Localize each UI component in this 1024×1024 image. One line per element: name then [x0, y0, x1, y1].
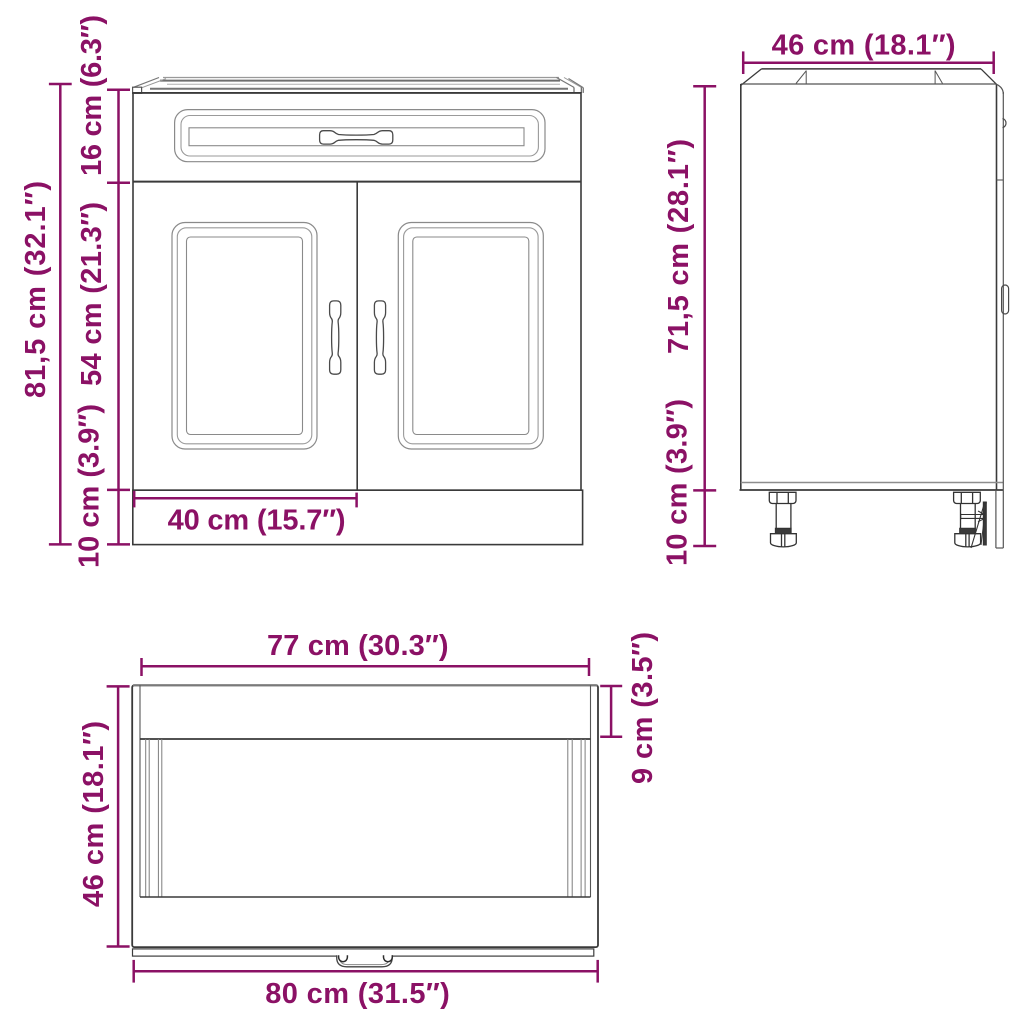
svg-text:77 cm (30.3″): 77 cm (30.3″): [267, 630, 449, 662]
svg-text:10 cm (3.9″): 10 cm (3.9″): [73, 404, 105, 568]
svg-text:46 cm (18.1″): 46 cm (18.1″): [772, 29, 956, 61]
svg-text:71,5 cm (28.1″): 71,5 cm (28.1″): [663, 139, 695, 354]
svg-text:81,5 cm (32.1″): 81,5 cm (32.1″): [20, 181, 52, 398]
svg-text:80 cm (31.5″): 80 cm (31.5″): [265, 978, 450, 1010]
svg-text:16 cm (6.3″): 16 cm (6.3″): [76, 15, 108, 176]
svg-text:40 cm (15.7″): 40 cm (15.7″): [168, 504, 346, 536]
svg-text:9 cm (3.5″): 9 cm (3.5″): [627, 632, 659, 784]
svg-text:10 cm (3.9″): 10 cm (3.9″): [662, 399, 694, 566]
svg-text:54 cm (21.3″): 54 cm (21.3″): [76, 202, 108, 386]
svg-text:46 cm (18.1″): 46 cm (18.1″): [78, 721, 110, 907]
